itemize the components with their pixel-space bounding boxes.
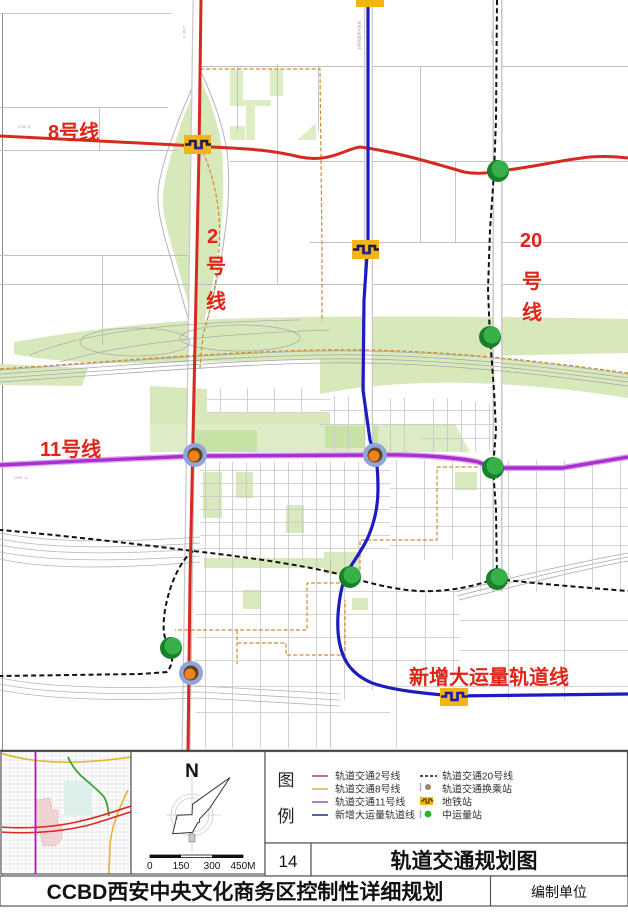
svg-text:编制单位: 编制单位 [531, 884, 587, 900]
svg-text:轨道交通2号线: 轨道交通2号线 [335, 770, 401, 783]
svg-text:地铁站: 地铁站 [442, 796, 472, 809]
svg-text:新增大运量轨道线: 新增大运量轨道线 [335, 809, 415, 822]
svg-text:轨道交通换乘站: 轨道交通换乘站 [442, 783, 512, 796]
svg-text:LINE 11: LINE 11 [14, 475, 29, 480]
svg-text:轨道交通规划图: 轨道交通规划图 [391, 849, 538, 873]
svg-text:11号线: 11号线 [40, 437, 101, 461]
svg-text:轨道交通8号线: 轨道交通8号线 [335, 783, 401, 796]
svg-text:例: 例 [278, 807, 295, 826]
svg-text:14: 14 [279, 852, 298, 871]
svg-text:LINE 8: LINE 8 [18, 124, 31, 129]
svg-text:号: 号 [522, 270, 542, 293]
svg-text:新增大运量轨道线: 新增大运量轨道线 [357, 21, 362, 50]
svg-text:图: 图 [278, 771, 295, 790]
svg-text:号: 号 [206, 255, 226, 278]
svg-text:轨道交通11号线: 轨道交通11号线 [335, 796, 405, 809]
svg-text:8号线: 8号线 [48, 120, 99, 144]
svg-text:450M: 450M [230, 861, 255, 872]
svg-text:线: 线 [206, 289, 226, 313]
svg-text:LINE 2: LINE 2 [182, 26, 187, 39]
svg-text:CCBD西安中央文化商务区控制性详细规划: CCBD西安中央文化商务区控制性详细规划 [47, 880, 444, 904]
svg-text:2: 2 [207, 226, 218, 248]
svg-text:150: 150 [173, 861, 190, 872]
svg-text:LINE 20: LINE 20 [490, 30, 495, 45]
svg-text:20: 20 [520, 230, 542, 252]
svg-text:0: 0 [147, 861, 153, 872]
svg-text:轨道交通20号线: 轨道交通20号线 [442, 770, 513, 783]
svg-text:新增大运量轨道线: 新增大运量轨道线 [409, 665, 569, 689]
svg-text:中运量站: 中运量站 [442, 809, 482, 822]
svg-text:300: 300 [204, 861, 221, 872]
svg-text:线: 线 [522, 300, 542, 324]
